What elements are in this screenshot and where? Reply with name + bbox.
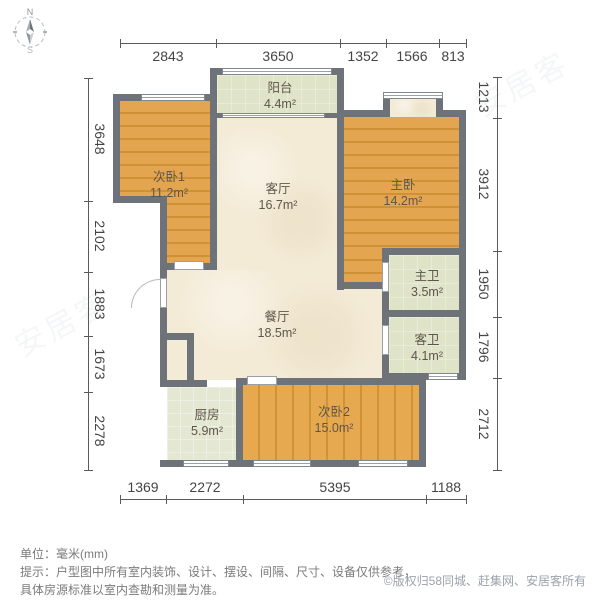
dimension-tick xyxy=(120,39,121,48)
dimension-tick xyxy=(84,272,93,273)
floor-bay-window xyxy=(390,99,436,117)
window-guest-bath xyxy=(428,373,458,380)
entry-door xyxy=(160,278,167,308)
dimension-line-top xyxy=(120,43,467,44)
dim-label-bottom: 5395 xyxy=(319,479,350,495)
wall-segment xyxy=(160,308,167,387)
room-label-master-bath: 主卫 3.5m² xyxy=(411,268,443,301)
wall-segment xyxy=(419,378,426,467)
room-label-balcony: 阳台 4.4m² xyxy=(264,80,296,113)
dimension-tick xyxy=(243,495,244,504)
window-kitchen xyxy=(183,460,229,467)
dimension-tick xyxy=(466,495,467,504)
dim-label-bottom: 2272 xyxy=(189,479,220,495)
wall-segment xyxy=(160,380,207,387)
wall-segment xyxy=(382,248,389,262)
wall-segment xyxy=(160,333,194,340)
door-bedroom2-2 xyxy=(247,376,277,385)
dimension-tick xyxy=(216,39,217,48)
dim-label-right: 2712 xyxy=(476,408,492,439)
dim-label-top: 1566 xyxy=(396,48,427,64)
dimension-tick xyxy=(493,251,502,252)
room-name: 餐厅 xyxy=(258,309,297,325)
door-master-bath xyxy=(382,262,389,292)
compass-north-label: N xyxy=(27,7,34,17)
dimension-tick xyxy=(340,39,341,48)
room-name: 客卫 xyxy=(411,332,443,348)
room-area: 14.2m² xyxy=(384,193,423,209)
dimension-tick xyxy=(493,118,502,119)
dimension-tick xyxy=(493,317,502,318)
wall-segment xyxy=(382,248,466,255)
window-bedroom2-2 xyxy=(358,460,408,467)
dimension-tick xyxy=(84,392,93,393)
window-balcony xyxy=(222,68,332,75)
disclaimer-line1: 提示：户型图中所有室内装饰、设计、摆设、间隔、尺寸、设备仅供参考， xyxy=(20,563,416,580)
room-area: 4.4m² xyxy=(264,96,296,112)
dimension-tick xyxy=(386,39,387,48)
room-name: 主卫 xyxy=(411,268,443,284)
compass-south-label: S xyxy=(27,45,33,54)
dim-label-right: 1213 xyxy=(476,81,492,112)
window-balcony-slider xyxy=(222,113,325,118)
dim-label-left: 2102 xyxy=(92,220,108,251)
room-name: 阳台 xyxy=(264,80,296,96)
compass-icon: N S xyxy=(6,6,54,54)
dimension-tick xyxy=(466,39,467,48)
dimension-tick xyxy=(84,78,93,79)
wall-segment xyxy=(382,355,389,380)
room-label-bedroom2-1: 次卧1 11.2m² xyxy=(150,169,188,202)
room-area: 11.2m² xyxy=(150,185,188,201)
dimension-line-bottom xyxy=(120,499,467,500)
dim-label-right: 1950 xyxy=(476,268,492,299)
dim-label-left: 1883 xyxy=(92,288,108,319)
dimension-tick xyxy=(493,470,502,471)
room-area: 5.9m² xyxy=(191,423,223,439)
disclaimer-line2: 具体房源标准以室内查勘和测量为准。 xyxy=(20,581,224,598)
dim-label-top: 813 xyxy=(441,48,464,64)
room-name: 次卧1 xyxy=(150,169,188,185)
dimension-tick xyxy=(426,495,427,504)
room-area: 15.0m² xyxy=(315,420,354,436)
dim-label-right: 1796 xyxy=(476,331,492,362)
window-bedroom2-1 xyxy=(141,94,205,101)
dimension-tick xyxy=(84,336,93,337)
door-guest-bath xyxy=(382,325,389,355)
room-area: 18.5m² xyxy=(258,325,297,341)
dim-label-top: 1352 xyxy=(347,48,378,64)
dimension-tick xyxy=(493,77,502,78)
dimension-tick xyxy=(166,495,167,504)
wall-segment xyxy=(337,68,344,290)
dim-label-bottom: 1188 xyxy=(431,479,461,495)
room-area: 16.7m² xyxy=(259,197,298,213)
room-area: 3.5m² xyxy=(411,284,443,300)
wall-segment xyxy=(382,310,466,317)
room-label-master: 主卧 14.2m² xyxy=(384,177,423,210)
dim-label-left: 1673 xyxy=(92,348,108,379)
dimension-tick xyxy=(120,495,121,504)
wall-segment xyxy=(160,263,174,270)
dimension-tick xyxy=(84,470,93,471)
wall-segment xyxy=(113,94,120,203)
dim-label-left: 2278 xyxy=(92,415,108,446)
room-name: 厨房 xyxy=(191,407,223,423)
room-label-living: 客厅 16.7m² xyxy=(259,181,298,214)
dim-label-bottom: 1369 xyxy=(127,479,158,495)
dimension-line-right xyxy=(497,77,498,470)
dimension-tick xyxy=(439,39,440,48)
room-label-dining: 餐厅 18.5m² xyxy=(258,309,297,342)
wall-segment xyxy=(204,263,217,270)
copyright-text: ©版权归58同城、赶集网、安居客所有 xyxy=(384,572,586,589)
entry-door-swing-arc xyxy=(131,279,160,308)
room-name: 次卧2 xyxy=(315,404,354,420)
wall-segment xyxy=(277,378,426,385)
room-label-bedroom2-2: 次卧2 15.0m² xyxy=(315,404,354,437)
room-label-guest-bath: 客卫 4.1m² xyxy=(411,332,443,365)
dim-label-left: 3648 xyxy=(92,123,108,154)
dim-label-top: 3650 xyxy=(262,48,293,64)
dimension-tick xyxy=(493,378,502,379)
room-label-kitchen: 厨房 5.9m² xyxy=(191,407,223,440)
window-bedroom2-2 xyxy=(253,460,311,467)
dimension-line-left xyxy=(88,78,89,470)
room-area: 4.1m² xyxy=(411,348,443,364)
dim-label-right: 3912 xyxy=(476,168,492,199)
window-bay xyxy=(383,92,443,99)
door-bedroom2-1 xyxy=(174,261,204,270)
room-name: 客厅 xyxy=(259,181,298,197)
floorplan-canvas: 安居客 安居客 N S xyxy=(0,0,600,600)
unit-note: 单位：毫米(mm) xyxy=(20,545,108,562)
wall-segment xyxy=(210,68,217,270)
wall-segment xyxy=(236,378,243,467)
floor-master xyxy=(344,248,382,282)
wall-segment xyxy=(459,110,466,380)
dimension-tick xyxy=(84,201,93,202)
dim-label-top: 2843 xyxy=(152,48,183,64)
wall-segment xyxy=(382,292,389,325)
room-name: 主卧 xyxy=(384,177,423,193)
